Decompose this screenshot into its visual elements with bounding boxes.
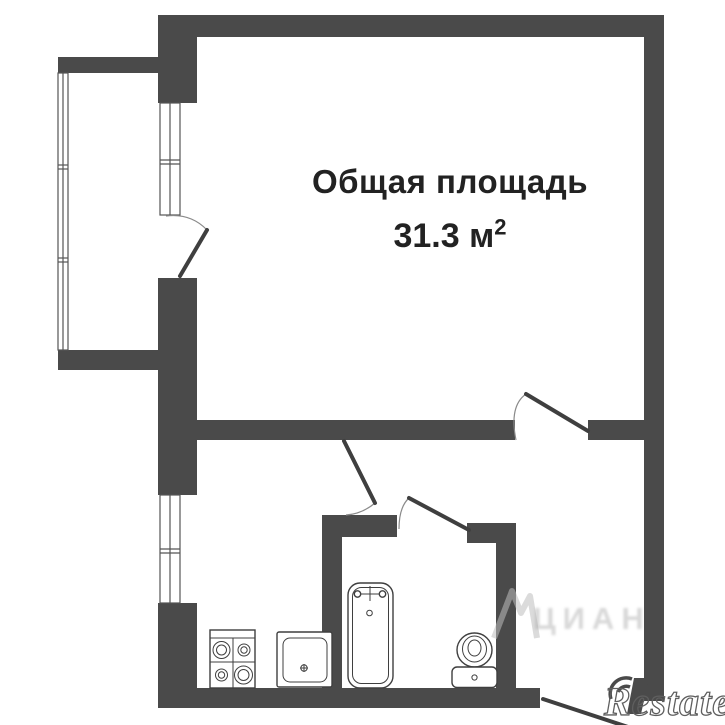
bathtub-icon: [348, 583, 393, 688]
total-area-label: Общая площадь 31.3 м2: [250, 163, 650, 256]
balcony-wall-top: [58, 57, 158, 73]
floorplan: Общая площадь 31.3 м2 ЦИАН Restate: [0, 0, 725, 725]
wall-top: [158, 15, 664, 37]
wall-left-kitchen-upper: [158, 440, 197, 495]
wall-left-upper: [158, 15, 197, 103]
bathroom-door-swing: [399, 498, 469, 530]
balcony-wall-bottom: [58, 350, 158, 370]
toilet-icon: [452, 633, 497, 688]
main-room-window-symbol: [160, 103, 180, 215]
restate-watermark: Restate: [604, 682, 725, 722]
sink-icon: [277, 632, 332, 687]
wall-middle-stub: [588, 420, 644, 440]
balcony-window-symbol: [58, 73, 68, 350]
room-door-swing: [514, 394, 588, 440]
area-title: Общая площадь: [250, 163, 650, 201]
balcony-door-swing: [166, 216, 207, 276]
stove-icon: [210, 630, 255, 688]
wall-middle: [158, 420, 515, 440]
kitchen-window-symbol: [160, 495, 180, 603]
wall-bath-stub: [342, 515, 397, 537]
area-value: 31.3 м2: [250, 217, 650, 256]
fixtures: [210, 583, 497, 688]
wall-left-mid: [158, 278, 197, 440]
wall-right: [644, 15, 664, 701]
cian-watermark: ЦИАН: [533, 601, 693, 637]
kitchen-door-swing: [344, 441, 375, 515]
wall-bottom: [158, 688, 540, 708]
